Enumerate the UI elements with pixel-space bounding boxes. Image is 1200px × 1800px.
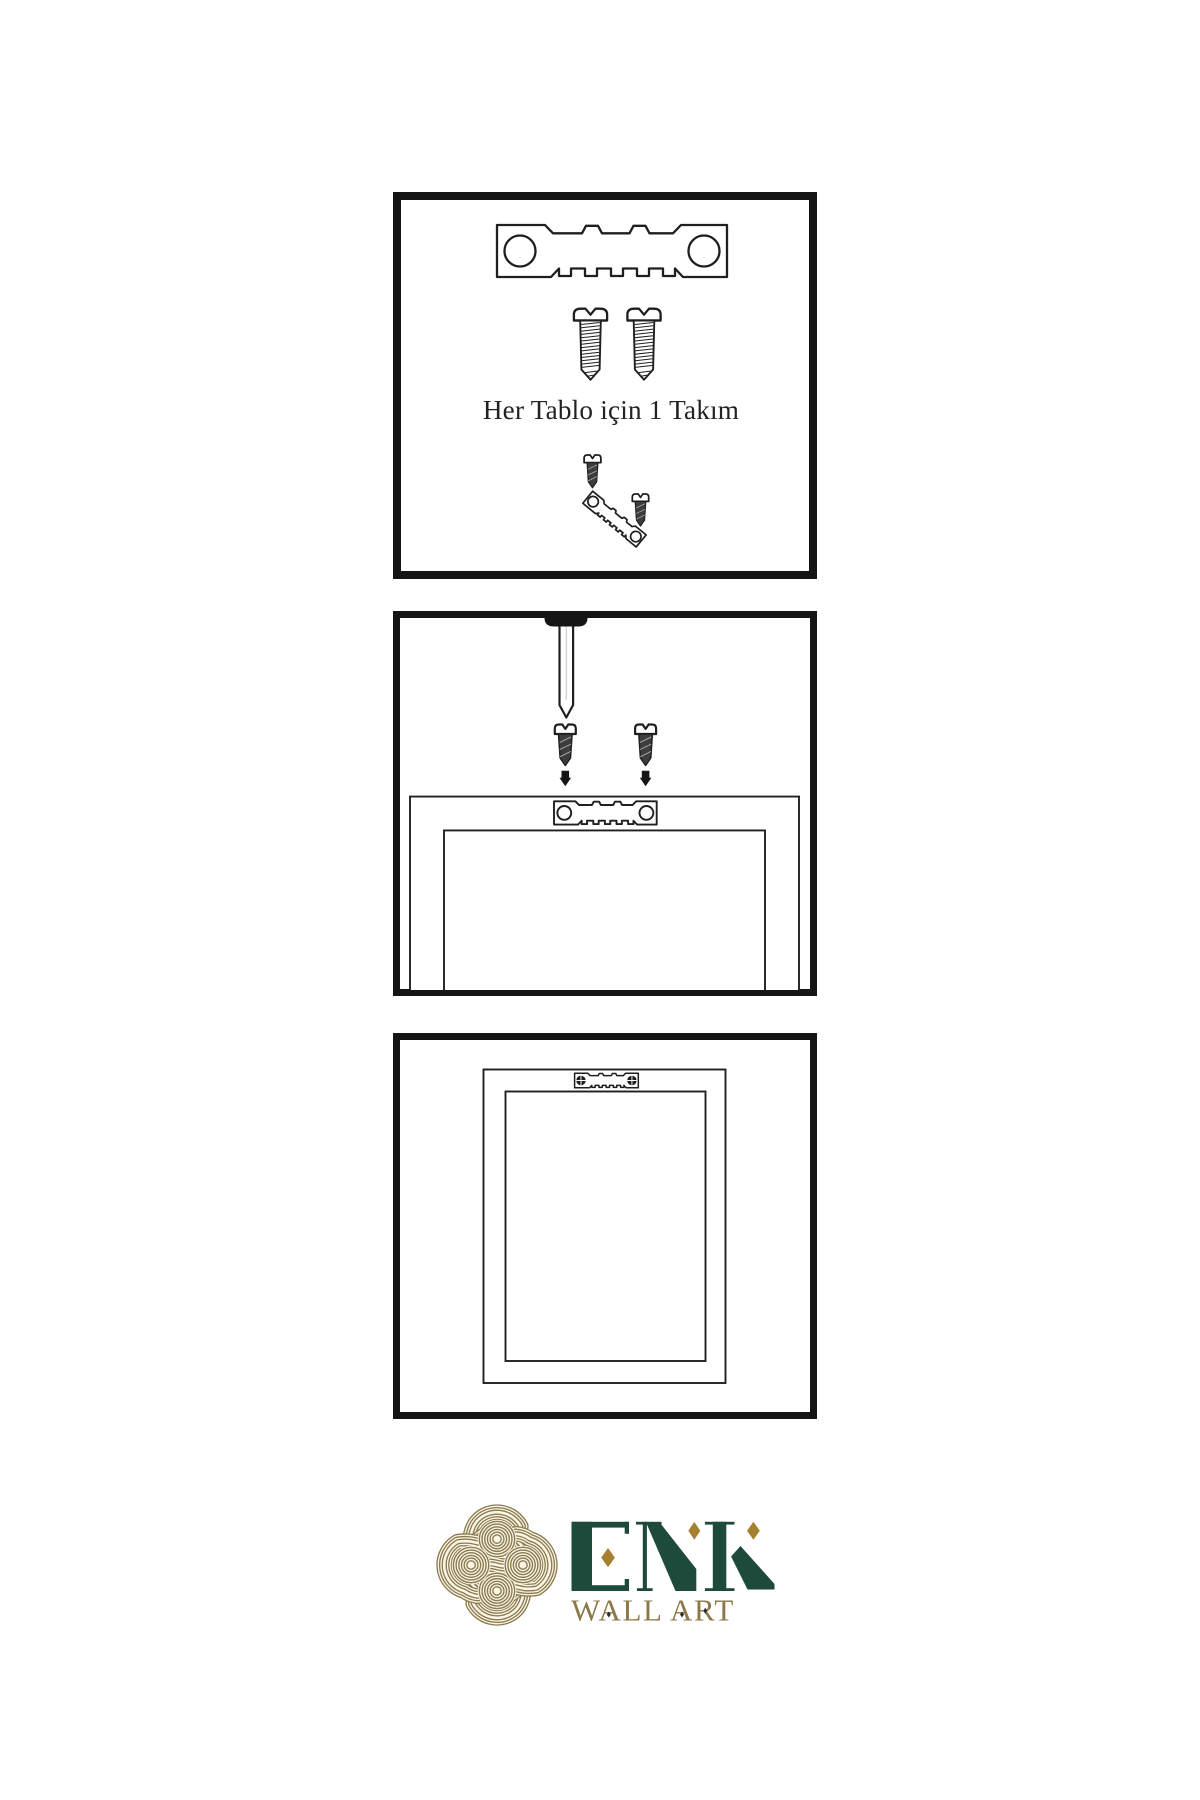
svg-text:WALL ART: WALL ART: [571, 1593, 735, 1628]
svg-text:Her Tablo için 1 Takım: Her Tablo için 1 Takım: [483, 395, 739, 425]
